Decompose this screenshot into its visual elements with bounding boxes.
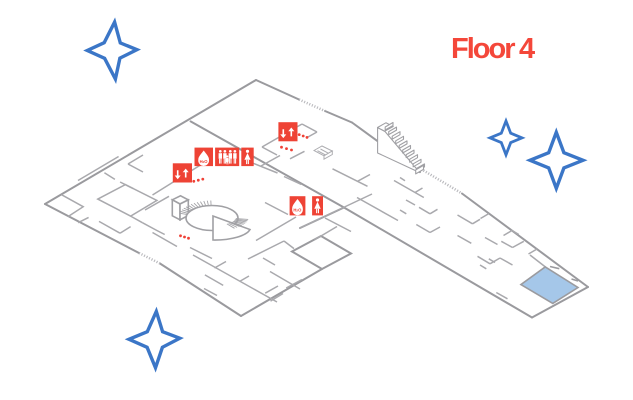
svg-text:Floor4: Floor4 xyxy=(451,33,535,65)
svg-text:H2O: H2O xyxy=(293,208,302,213)
svg-text:H2O: H2O xyxy=(200,159,209,164)
